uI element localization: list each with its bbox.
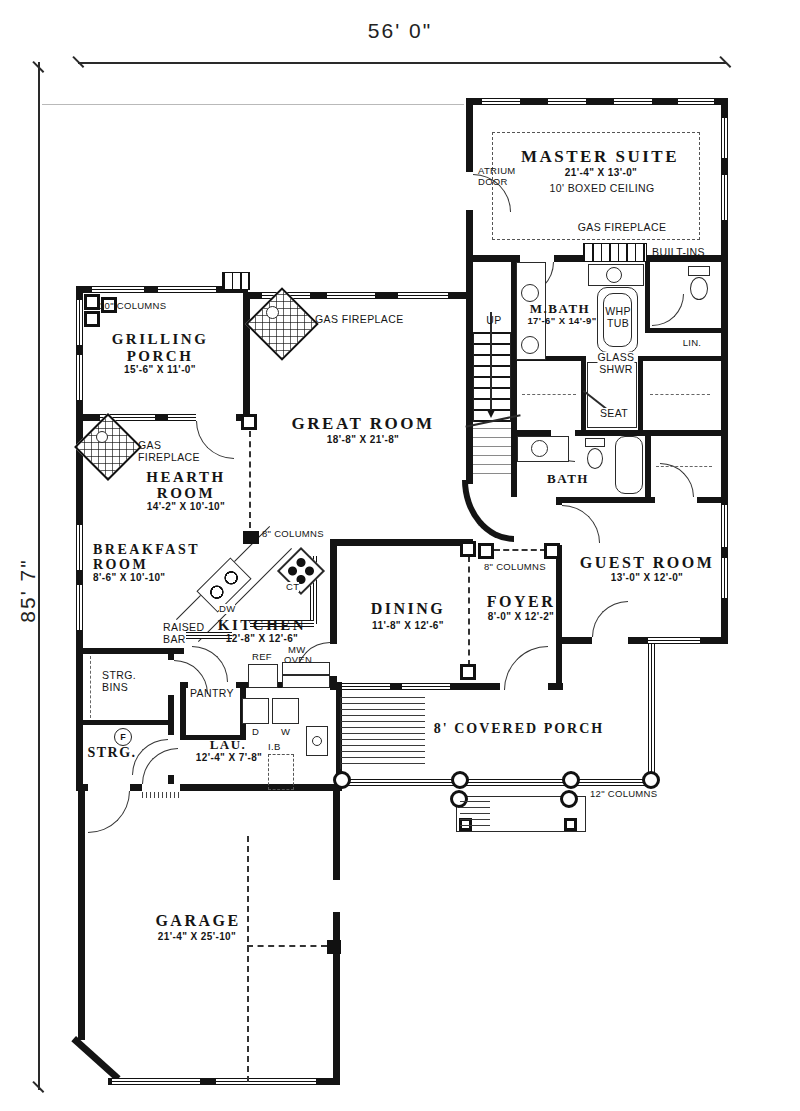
fireplace <box>74 413 142 481</box>
ct-label: CT <box>286 582 299 592</box>
dimension-line-top <box>78 62 726 64</box>
lin-label: LIN. <box>683 338 702 348</box>
whp-tub-label: WHP <box>605 306 631 317</box>
columns-8-label: 8" COLUMNS <box>484 562 546 572</box>
dw-label: DW <box>219 604 235 614</box>
porch-edge <box>648 644 655 784</box>
strg-label: STRG. <box>87 746 136 760</box>
utility-sink-drain <box>312 736 322 746</box>
porch-edge <box>336 779 654 786</box>
up-label: UP <box>486 315 501 326</box>
window <box>342 683 390 690</box>
gas-fireplace-label: GAS FIREPLACE <box>578 222 667 233</box>
sink <box>606 267 622 283</box>
window <box>158 286 216 293</box>
room-dims-grilling-porch: 15'-6" X 11'-0" <box>124 365 196 375</box>
sink <box>531 440 548 457</box>
window <box>327 292 375 299</box>
dimension-width: 56' 0" <box>368 20 432 41</box>
window <box>614 98 652 105</box>
wall <box>466 98 473 172</box>
wall <box>556 545 562 687</box>
wall <box>243 292 250 421</box>
washer-label: W <box>281 727 290 737</box>
raised-bar-label: BAR <box>163 634 186 645</box>
window <box>548 98 586 105</box>
wall <box>697 497 728 503</box>
window <box>721 175 728 220</box>
window <box>76 355 83 400</box>
door-opening <box>88 784 130 791</box>
wall <box>643 356 722 361</box>
room-dims-foyer: 8'-0" X 12'-2" <box>488 612 555 622</box>
wall <box>168 648 174 660</box>
refrigerator <box>248 664 278 688</box>
window <box>648 637 700 644</box>
strg-bins-label: BINS <box>102 682 128 693</box>
atrium-door-label: DOOR <box>478 177 508 187</box>
glass-shwr-label: SHWR <box>599 364 633 375</box>
threshold <box>142 792 180 798</box>
column <box>564 818 577 831</box>
wall-stub <box>327 940 341 954</box>
mw-oven-label: OVEN <box>284 655 312 665</box>
wall <box>645 262 650 332</box>
window <box>76 585 83 630</box>
toilet-bowl <box>587 448 603 469</box>
room-dims-mbath: 17'-6" X 14'-9" <box>527 316 596 326</box>
strg-bins-label: STRG. <box>102 670 136 681</box>
room-dims-great-room: 18'-8" X 21'-8" <box>327 435 400 445</box>
garage-door <box>112 1078 200 1085</box>
room-label-master-suite: MASTER SUITE <box>521 148 679 165</box>
room-label-laundry: LAU. <box>210 738 247 751</box>
stairs-up <box>473 332 511 422</box>
glass-shwr-label: GLASS <box>597 352 634 363</box>
garage-door <box>216 1078 316 1085</box>
wall <box>575 430 728 436</box>
curved-wall <box>462 480 514 542</box>
column-line <box>468 556 470 666</box>
gas-fireplace-label: FIREPLACE <box>138 452 200 463</box>
ironing-board <box>268 754 294 790</box>
stair-rail <box>490 312 492 412</box>
column <box>84 294 100 310</box>
built-ins-cabinet <box>583 243 647 262</box>
toilet-bowl <box>690 277 708 300</box>
shelving <box>90 656 91 718</box>
room-dims-kitchen: 12'-8" X 12'-6" <box>226 634 299 644</box>
door-opening <box>333 880 340 912</box>
closet-rod <box>656 466 712 467</box>
sink <box>521 284 539 302</box>
garage-line <box>247 945 327 947</box>
room-dims-master-suite: 21'-4" X 13'-0" <box>565 168 638 178</box>
fireplace-flue <box>96 431 108 443</box>
door-arc <box>660 463 694 497</box>
door-opening <box>466 174 473 210</box>
column-line <box>249 421 251 528</box>
wall <box>466 292 473 484</box>
door-arc <box>652 294 684 326</box>
window <box>398 292 448 299</box>
wall <box>581 356 586 433</box>
door-opening <box>592 637 628 644</box>
columns-8-label: 8" COLUMNS <box>262 529 324 539</box>
wall <box>76 720 174 725</box>
stair-arrow <box>487 410 495 418</box>
room-label-mbath: M.BATH <box>530 302 590 315</box>
bathtub <box>615 436 643 494</box>
wall <box>78 788 85 1040</box>
room-label-hearth: ROOM <box>157 486 215 501</box>
toilet-tank <box>688 266 710 276</box>
fireplace-flue <box>266 306 279 319</box>
toilet-tank <box>585 438 605 447</box>
room-label-grilling-porch: GRILLING <box>112 332 209 347</box>
window <box>721 558 728 598</box>
gas-fireplace-label: GAS <box>138 440 161 451</box>
room-dims-garage: 21'-4" X 25'-10" <box>158 932 236 942</box>
dimension-height: 85' 7" <box>17 546 38 636</box>
door-arc <box>196 421 234 459</box>
door-opening <box>330 644 337 676</box>
room-dims-hearth: 14'-2" X 10'-10" <box>147 502 225 512</box>
room-label-kitchen: KITCHEN <box>218 618 306 633</box>
porch-column <box>562 771 580 789</box>
room-label-breakfast: BREAKFAST <box>93 543 200 557</box>
door-opening <box>520 255 554 262</box>
room-dims-guest: 13'-0" X 12'-0" <box>611 573 684 583</box>
column <box>241 414 257 430</box>
dryer <box>242 698 269 724</box>
seat-label: SEAT <box>600 408 628 419</box>
room-label-breakfast: ROOM <box>93 558 148 572</box>
wall <box>466 210 473 298</box>
built-ins-label: BUILT-INS <box>652 247 705 258</box>
gas-fireplace-label: GAS FIREPLACE <box>315 314 404 325</box>
room-label-hearth: HEARTH <box>146 470 225 485</box>
room-label-bath: BATH <box>547 472 589 485</box>
column <box>243 531 259 544</box>
garage-line <box>247 836 249 1082</box>
wall <box>71 1036 120 1081</box>
door-opening <box>142 784 180 791</box>
porch-label: 8' COVERED PORCH <box>434 722 604 736</box>
window <box>482 98 520 105</box>
chimney <box>222 272 250 290</box>
floor-plan-sheet: 56' 0" 85' 7" <box>0 0 800 1111</box>
porch-steps <box>340 697 425 769</box>
closet-rod <box>522 394 576 395</box>
window <box>721 118 728 158</box>
door-arc <box>88 791 130 833</box>
ironing-board-label: I.B <box>268 742 281 752</box>
porch-column <box>451 771 469 789</box>
atrium-door-label: ATRIUM <box>478 166 516 176</box>
porch-column <box>642 771 660 789</box>
window <box>721 505 728 547</box>
door-arc <box>562 505 600 543</box>
dryer-label: D <box>252 727 259 737</box>
room-dims-breakfast: 8'-6" X 10'-10" <box>93 573 166 583</box>
sink <box>521 336 539 354</box>
wall <box>556 637 728 644</box>
room-label-guest: GUEST ROOM <box>580 555 715 571</box>
wall <box>638 356 643 433</box>
pantry-label: PANTRY <box>190 688 234 699</box>
porch-column <box>560 790 578 808</box>
extension-line <box>42 104 464 105</box>
closet-rod <box>650 394 710 395</box>
wall <box>168 695 174 735</box>
stairs-hidden <box>473 428 511 480</box>
porch-column <box>333 771 351 789</box>
column-line <box>494 549 546 551</box>
room-label-foyer: FOYER <box>487 594 556 610</box>
window <box>402 683 450 690</box>
ref-label: REF <box>252 652 272 662</box>
whp-tub-label: TUB <box>607 318 629 329</box>
room-dims-dining: 11'-8" X 12'-6" <box>372 621 444 631</box>
room-label-garage: GARAGE <box>155 913 240 929</box>
column <box>84 311 100 327</box>
wall <box>333 788 340 1085</box>
utility-symbol: F <box>114 728 132 746</box>
column <box>478 543 494 559</box>
wall <box>556 497 655 503</box>
wall <box>645 328 722 333</box>
window <box>678 98 714 105</box>
wall <box>645 430 651 497</box>
window <box>76 300 83 345</box>
column <box>460 664 476 680</box>
room-dims-laundry: 12'-4" X 7'-8" <box>196 753 263 763</box>
wall <box>330 539 473 546</box>
raised-bar-label: RAISED <box>163 622 205 633</box>
columns-10-label: 10" COLUMNS <box>99 301 166 311</box>
window <box>76 525 83 570</box>
column <box>544 543 560 559</box>
window <box>92 286 144 293</box>
room-label-great-room: GREAT ROOM <box>292 415 435 432</box>
room-label-grilling-porch: PORCH <box>127 349 194 364</box>
room-note-master-suite: 10' BOXED CEILING <box>549 183 654 194</box>
stoop-steps <box>460 801 490 829</box>
columns-12-label: 12" COLUMNS <box>590 789 657 799</box>
door-opening <box>196 414 236 421</box>
column <box>460 541 476 557</box>
door-arc <box>504 646 548 690</box>
washer <box>272 698 299 724</box>
wall-oven <box>282 662 330 688</box>
door-arc <box>592 601 628 637</box>
room-label-dining: DINING <box>371 601 446 617</box>
